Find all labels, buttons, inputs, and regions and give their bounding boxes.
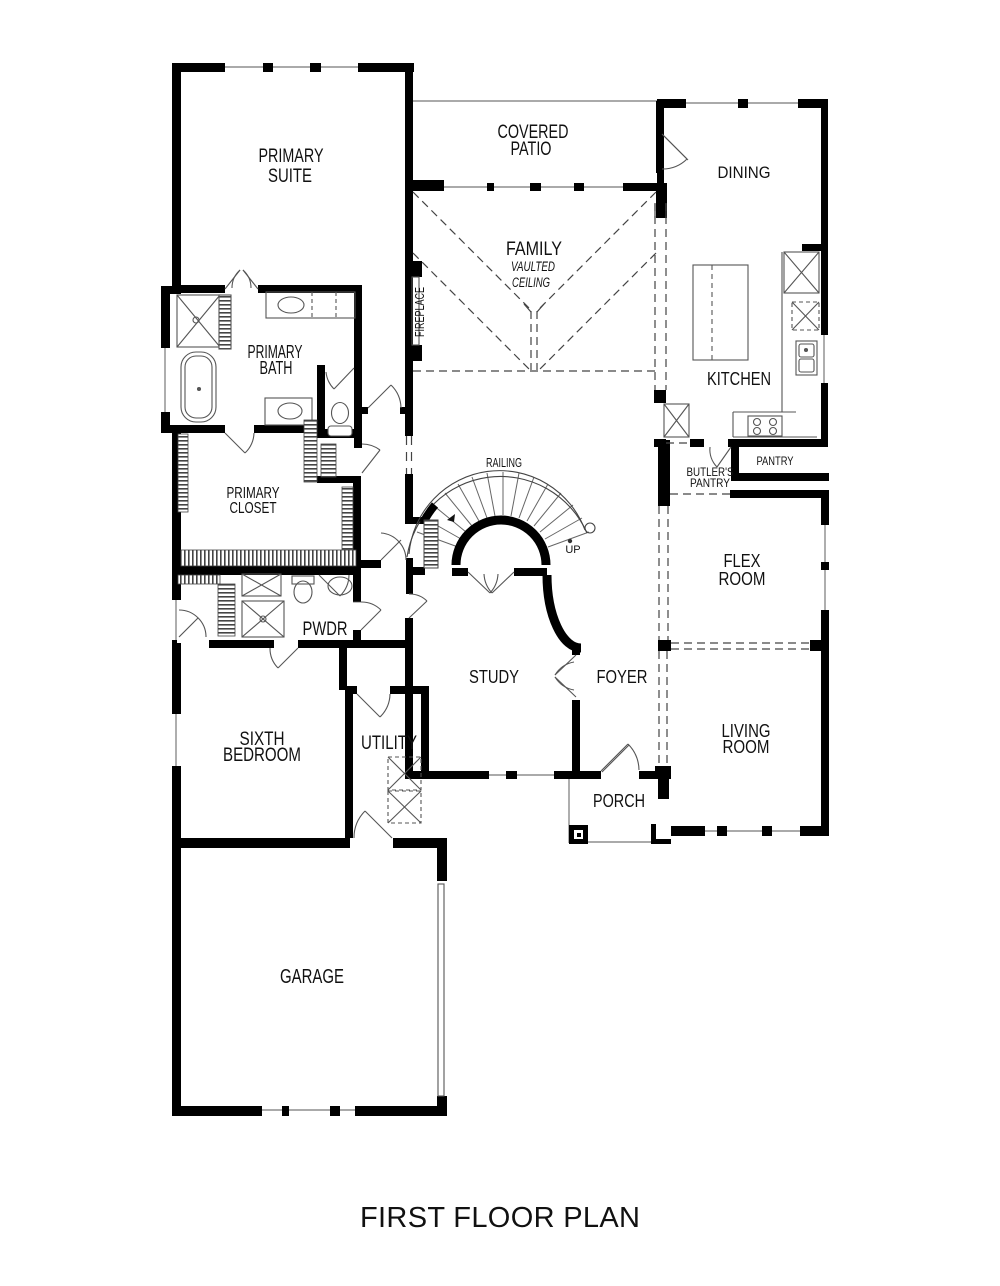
svg-text:FIREPLACE: FIREPLACE [412,287,427,337]
svg-text:STUDY: STUDY [469,666,519,687]
svg-text:PATIO: PATIO [511,139,552,160]
svg-text:DINING: DINING [718,163,771,182]
svg-text:CLOSET: CLOSET [230,500,277,517]
svg-text:GARAGE: GARAGE [280,966,344,988]
svg-text:PANTRY: PANTRY [690,476,730,490]
svg-text:UP: UP [565,544,580,556]
svg-text:FIRST FLOOR PLAN: FIRST FLOOR PLAN [360,1202,640,1234]
svg-text:FOYER: FOYER [597,666,648,687]
svg-text:RAILING: RAILING [486,455,522,470]
svg-text:PWDR: PWDR [303,619,348,640]
svg-text:PRIMARY: PRIMARY [259,146,324,167]
svg-text:VAULTED: VAULTED [511,259,555,274]
svg-text:PANTRY: PANTRY [757,454,794,468]
svg-text:SUITE: SUITE [268,166,312,187]
svg-text:ROOM: ROOM [719,568,766,589]
svg-text:CEILING: CEILING [512,275,550,290]
svg-text:BEDROOM: BEDROOM [223,745,301,766]
svg-text:PORCH: PORCH [593,790,645,811]
svg-text:FAMILY: FAMILY [506,239,562,260]
svg-text:UTILITY: UTILITY [361,733,417,754]
svg-text:ROOM: ROOM [723,736,770,757]
svg-text:KITCHEN: KITCHEN [707,369,771,389]
svg-text:BATH: BATH [260,358,293,378]
